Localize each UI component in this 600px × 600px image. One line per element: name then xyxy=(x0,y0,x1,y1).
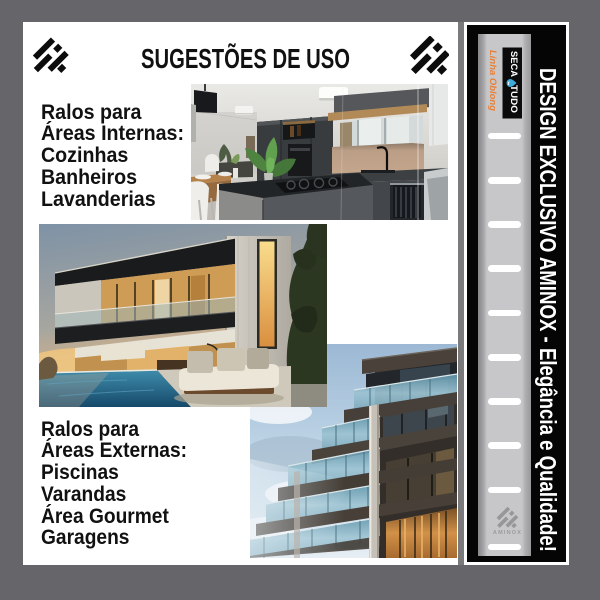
svg-text:DESIGN EXCLUSIVO AMINOX - Eleg: DESIGN EXCLUSIVO AMINOX - Elegância e Qu… xyxy=(535,68,561,552)
